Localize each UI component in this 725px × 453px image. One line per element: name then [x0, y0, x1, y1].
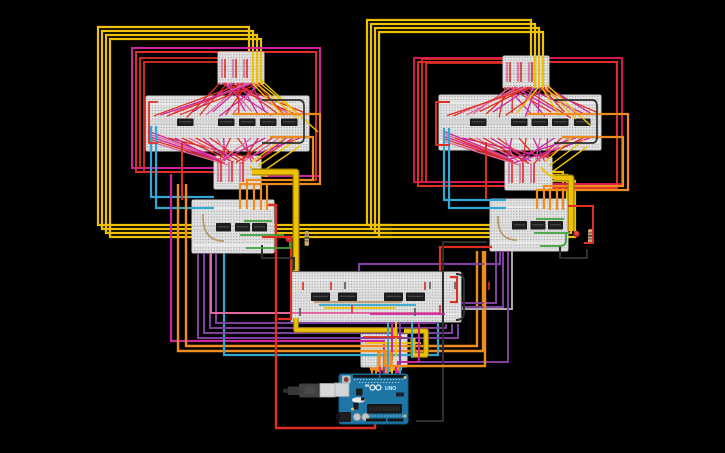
svg-text:UNO: UNO: [385, 386, 396, 392]
